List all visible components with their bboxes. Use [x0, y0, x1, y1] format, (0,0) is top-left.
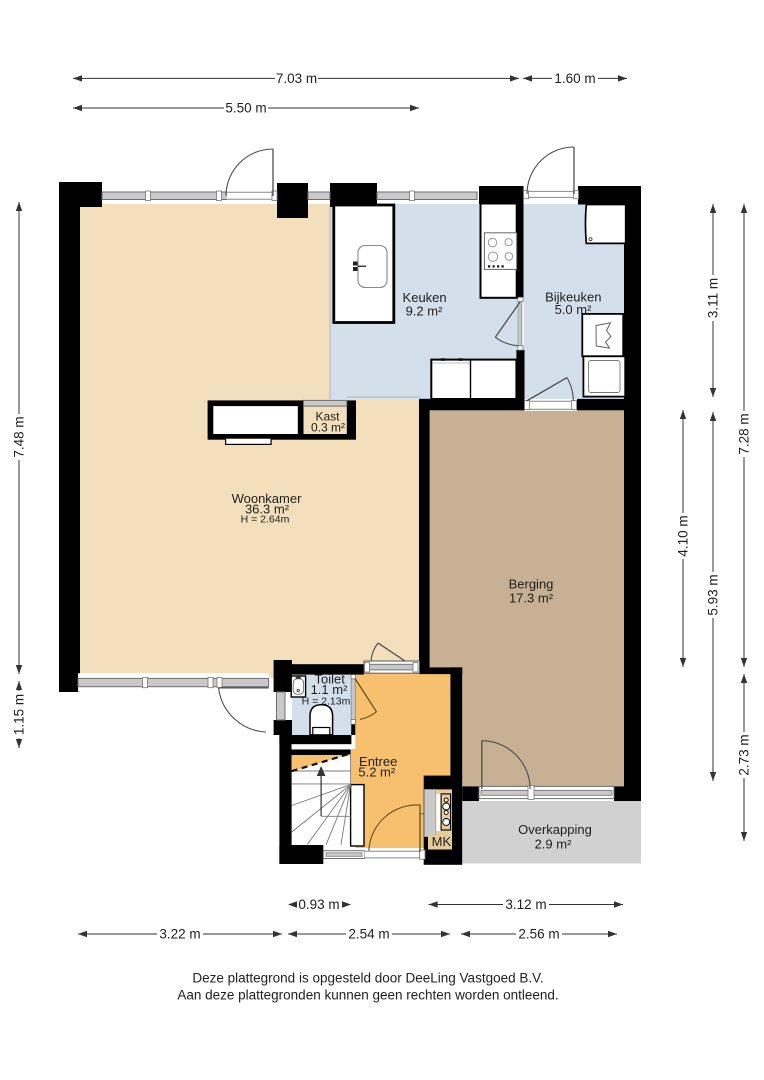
- svg-text:7.03 m: 7.03 m: [276, 71, 317, 86]
- svg-text:2.9 m²: 2.9 m²: [535, 837, 573, 852]
- svg-text:17.3 m²: 17.3 m²: [509, 591, 554, 606]
- svg-text:5.0 m²: 5.0 m²: [555, 302, 593, 317]
- svg-text:3.22 m: 3.22 m: [159, 927, 200, 942]
- svg-text:2.56 m: 2.56 m: [518, 927, 559, 942]
- svg-text:1.60 m: 1.60 m: [554, 71, 595, 86]
- svg-text:5.50 m: 5.50 m: [225, 101, 266, 116]
- svg-text:3.11 m: 3.11 m: [706, 278, 721, 318]
- svg-text:4.10 m: 4.10 m: [676, 515, 691, 556]
- svg-text:9.2 m²: 9.2 m²: [406, 304, 444, 319]
- svg-text:Deze plattegrond is opgesteld: Deze plattegrond is opgesteld door DeeLi…: [192, 971, 543, 986]
- svg-text:Berging: Berging: [509, 577, 554, 592]
- svg-text:7.48 m: 7.48 m: [12, 416, 27, 457]
- svg-text:Aan deze plattegronden kunnen: Aan deze plattegronden kunnen geen recht…: [177, 988, 558, 1003]
- svg-text:7.28 m: 7.28 m: [737, 413, 752, 454]
- svg-text:1.15 m: 1.15 m: [12, 694, 27, 735]
- svg-text:5.93 m: 5.93 m: [706, 574, 721, 615]
- svg-text:MK: MK: [432, 834, 452, 849]
- svg-text:3.12 m: 3.12 m: [505, 897, 546, 912]
- svg-text:5.2 m²: 5.2 m²: [358, 765, 396, 780]
- svg-text:0.3 m²: 0.3 m²: [311, 421, 345, 435]
- svg-text:2.54 m: 2.54 m: [348, 927, 389, 942]
- svg-text:2.73 m: 2.73 m: [737, 734, 752, 775]
- svg-text:H = 2.13m: H = 2.13m: [302, 695, 351, 707]
- svg-text:0.93 m: 0.93 m: [298, 897, 339, 912]
- svg-text:Overkapping: Overkapping: [518, 822, 592, 837]
- svg-text:H = 2.64m: H = 2.64m: [241, 513, 290, 525]
